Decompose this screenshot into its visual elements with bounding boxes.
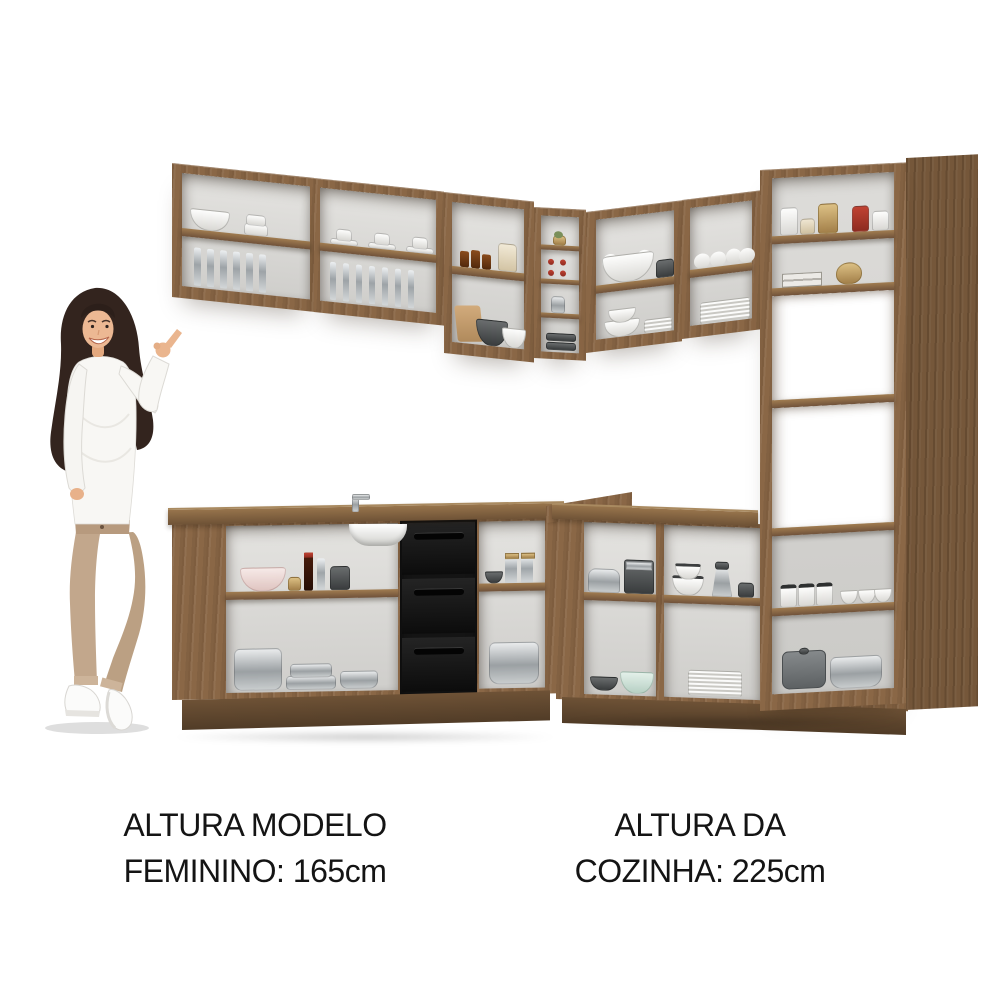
faucet-spout bbox=[352, 494, 370, 500]
wine-bottle-cap bbox=[548, 259, 554, 265]
amber-jar bbox=[471, 250, 480, 269]
white-bowl bbox=[840, 590, 858, 605]
wine-bottle bbox=[546, 342, 576, 352]
wall-bay-3-interior bbox=[452, 202, 524, 350]
plant bbox=[554, 231, 563, 238]
drawer-1 bbox=[402, 522, 475, 575]
base-bay-3a-bottom-shelf bbox=[588, 600, 654, 696]
base-bay-3b-top-shelf bbox=[668, 525, 758, 598]
model-forearm-raised bbox=[139, 356, 169, 412]
model-trouser-leg bbox=[70, 532, 100, 682]
drinking-glass bbox=[343, 263, 349, 302]
steel-stockpot bbox=[489, 642, 539, 685]
model-eye bbox=[91, 325, 94, 328]
base-bay-3b-interior bbox=[664, 525, 760, 700]
rack-cubby-1 bbox=[545, 216, 577, 247]
rose-bowl-stack bbox=[240, 567, 286, 592]
wine-bottle-cap bbox=[548, 270, 554, 276]
product-image: ALTURA MODELO FEMININO: 165cm ALTURA DA … bbox=[0, 0, 1000, 1000]
drawer-handle bbox=[414, 532, 464, 540]
model-pointing-finger bbox=[165, 329, 182, 348]
glass-bottle bbox=[317, 558, 325, 590]
tall-shelf-books bbox=[776, 238, 892, 288]
model-trouser-leg-crossed bbox=[100, 532, 145, 692]
toaster bbox=[588, 568, 620, 593]
gray-cup bbox=[656, 258, 674, 278]
gray-canister bbox=[330, 566, 350, 590]
drinking-glass bbox=[233, 251, 240, 290]
tall-open-section bbox=[772, 290, 894, 400]
white-pot bbox=[502, 327, 526, 350]
casserole bbox=[340, 670, 378, 689]
base-bay-1-interior bbox=[226, 523, 398, 693]
drinking-glass bbox=[395, 269, 401, 308]
drinking-glass bbox=[408, 270, 414, 309]
pan bbox=[290, 663, 332, 678]
wall-bay-4-interior bbox=[596, 210, 674, 340]
tall-cabinet-side-panel bbox=[906, 154, 978, 710]
gold-canister bbox=[818, 203, 838, 234]
cup bbox=[374, 232, 390, 246]
caption-kitchen-height: ALTURA DA COZINHA: 225cm bbox=[535, 802, 865, 894]
corner-wine-rack bbox=[534, 207, 586, 361]
drinking-glass bbox=[369, 266, 375, 305]
drawer-unit bbox=[400, 518, 477, 696]
base-bay-2-top-shelf bbox=[483, 521, 543, 584]
cream-canister bbox=[800, 218, 815, 235]
drawer-2 bbox=[402, 578, 475, 634]
wall-bay-5-bottom-shelf bbox=[694, 271, 750, 326]
lidded-jar bbox=[780, 584, 797, 608]
box-grater bbox=[712, 566, 732, 597]
wall-bay-3-top-shelf bbox=[456, 202, 522, 273]
glass-canister bbox=[521, 557, 533, 583]
base-bay-3a-interior bbox=[584, 522, 656, 697]
wall-bay-2-bottom-shelf bbox=[324, 251, 434, 313]
wine-bottle-cap bbox=[560, 270, 566, 276]
sneaker-sole bbox=[65, 710, 100, 717]
round-jar bbox=[739, 247, 755, 264]
wall-cabinet-bay-3 bbox=[444, 192, 534, 362]
caption-model-height-line1: ALTURA MODELO bbox=[90, 802, 420, 848]
gold-lid bbox=[521, 553, 535, 559]
caption-kitchen-height-line2: COZINHA: 225cm bbox=[535, 848, 865, 894]
corner-rack-interior bbox=[541, 215, 579, 353]
caption-kitchen-height-line1: ALTURA DA bbox=[535, 802, 865, 848]
lidded-jar bbox=[798, 583, 815, 607]
small-jar bbox=[288, 577, 301, 591]
gray-stockpot bbox=[782, 650, 826, 690]
tall-shelf-jars bbox=[776, 530, 892, 608]
wine-bottle bbox=[304, 553, 313, 591]
wall-bay-5-top-shelf bbox=[694, 201, 750, 270]
drinking-glass bbox=[246, 253, 253, 292]
grater-handle bbox=[715, 562, 729, 570]
red-canister bbox=[852, 205, 869, 232]
rack-cubby-4-wine bbox=[545, 318, 577, 354]
wall-bay-5-interior bbox=[690, 200, 752, 326]
tall-shelf-canisters bbox=[776, 172, 892, 236]
tall-open-section bbox=[772, 402, 894, 528]
drinking-glass bbox=[382, 267, 388, 306]
mint-scalloped-bowl bbox=[620, 671, 654, 694]
floor-shadow bbox=[560, 716, 910, 728]
plate-stack bbox=[688, 670, 742, 698]
tall-shelf-pots bbox=[776, 610, 892, 694]
white-bowl bbox=[874, 588, 892, 603]
wall-cabinet-bay-4 bbox=[586, 200, 682, 353]
wall-cabinet-bay-1 bbox=[172, 163, 314, 312]
drinking-glass bbox=[207, 249, 214, 288]
trouser-cuff bbox=[74, 676, 98, 685]
wall-cabinet-bay-2 bbox=[314, 178, 444, 326]
black-bowl bbox=[590, 676, 618, 691]
stacked-cups bbox=[246, 214, 266, 227]
wall-bay-1-interior bbox=[182, 173, 310, 299]
wine-bottle bbox=[546, 333, 576, 343]
drawer-3 bbox=[402, 637, 475, 692]
gray-bowl bbox=[485, 571, 503, 583]
floor-shadow bbox=[170, 731, 560, 743]
model-eye bbox=[105, 325, 108, 328]
sneaker bbox=[65, 685, 100, 713]
model-hand-pocket bbox=[70, 488, 84, 500]
model-thumb bbox=[154, 343, 161, 350]
gray-mug bbox=[738, 582, 754, 598]
drawer-handle bbox=[414, 647, 464, 655]
amber-jar bbox=[460, 251, 469, 268]
base-bay-1-bottom-shelf bbox=[230, 597, 396, 693]
drinking-glass bbox=[259, 254, 266, 293]
wall-bay-4-bottom-shelf bbox=[600, 284, 672, 339]
espresso-machine-top bbox=[626, 561, 652, 570]
stockpot bbox=[234, 648, 282, 691]
appliance-shelf bbox=[588, 522, 654, 594]
wall-bay-2-interior bbox=[320, 188, 436, 313]
drinking-glass bbox=[220, 250, 227, 289]
trouser-button bbox=[100, 525, 104, 529]
model-floor-shadow bbox=[45, 722, 149, 734]
glass-canister bbox=[505, 557, 517, 583]
tall-cabinet bbox=[760, 162, 906, 711]
wall-cabinet-bay-5 bbox=[682, 190, 760, 339]
metal-cup bbox=[551, 296, 565, 314]
wall-bay-4-top-shelf bbox=[600, 210, 672, 285]
plate-stack bbox=[644, 316, 672, 333]
caption-model-height-line2: FEMININO: 165cm bbox=[90, 848, 420, 894]
cup bbox=[412, 236, 428, 250]
white-canister bbox=[780, 207, 798, 236]
plate-stack bbox=[700, 297, 750, 325]
brass-kettle bbox=[836, 262, 862, 285]
steel-stockpot bbox=[830, 655, 882, 690]
ceramic-jar bbox=[498, 243, 517, 273]
cup bbox=[336, 228, 352, 242]
amber-jar bbox=[482, 254, 491, 270]
base-bay-3b-bottom-shelf bbox=[668, 603, 758, 700]
wall-bay-3-bottom-shelf bbox=[456, 274, 522, 349]
bottle-cap bbox=[304, 553, 313, 558]
rack-cubby-2-wine bbox=[545, 250, 577, 281]
drinking-glass bbox=[194, 247, 201, 286]
base-bay-2-interior bbox=[479, 520, 545, 688]
lidded-jar bbox=[816, 582, 833, 606]
drinking-glass bbox=[330, 262, 336, 301]
drawer-handle bbox=[414, 588, 464, 596]
caption-model-height: ALTURA MODELO FEMININO: 165cm bbox=[90, 802, 420, 894]
drinking-glass bbox=[356, 264, 362, 303]
wine-bottle-cap bbox=[560, 259, 566, 265]
rack-cubby-3 bbox=[545, 284, 577, 315]
tall-cabinet-interior bbox=[772, 172, 894, 694]
base-bay-2-bottom-shelf bbox=[483, 591, 543, 689]
gold-lid bbox=[505, 553, 519, 559]
white-pitcher bbox=[872, 210, 889, 231]
